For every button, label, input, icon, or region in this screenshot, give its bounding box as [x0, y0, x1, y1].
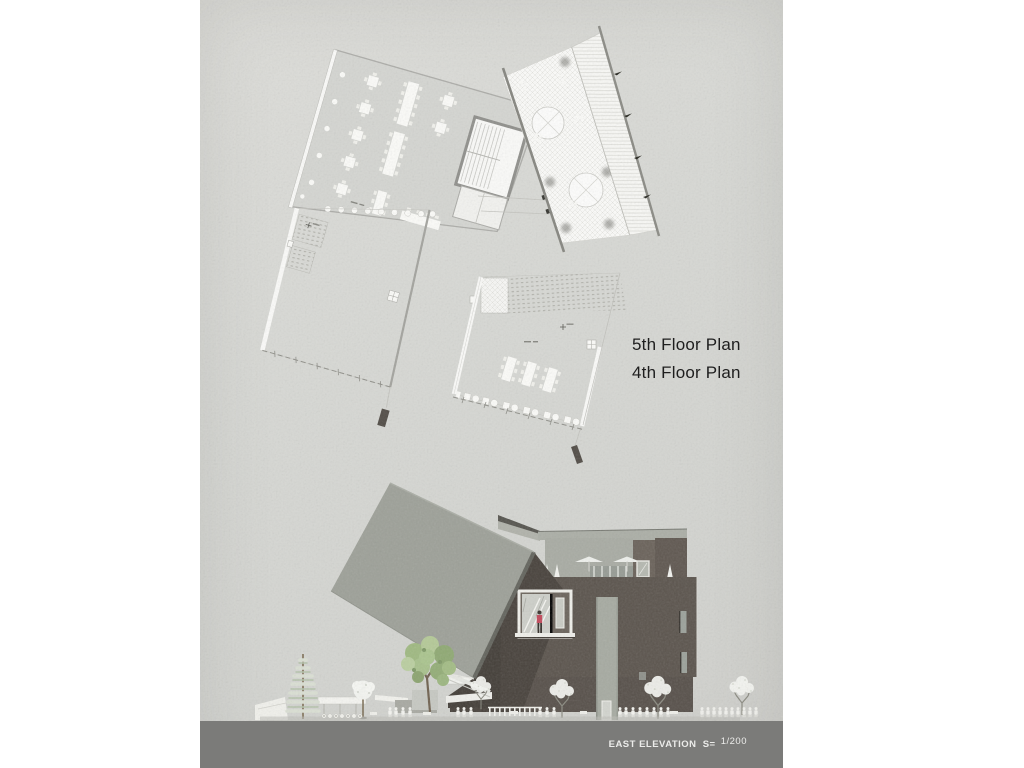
elevation-scale-eq: S=: [703, 739, 716, 750]
elevation-caption: EAST ELEVATION S= 1/200: [609, 739, 747, 750]
fourth-floor-plan-label: 4th Floor Plan: [632, 364, 741, 382]
footer-band: EAST ELEVATION S= 1/200: [200, 721, 783, 768]
fifth-floor-plan-label: 5th Floor Plan: [632, 336, 741, 354]
sheet-grain-overlay: [200, 0, 783, 768]
elevation-scale-value: 1/200: [721, 736, 747, 747]
elevation-caption-title: EAST ELEVATION: [609, 739, 697, 750]
presentation-sheet: 5th Floor Plan 4th Floor Plan EAST ELEVA…: [200, 0, 783, 768]
sheet-drawings: [200, 0, 783, 768]
